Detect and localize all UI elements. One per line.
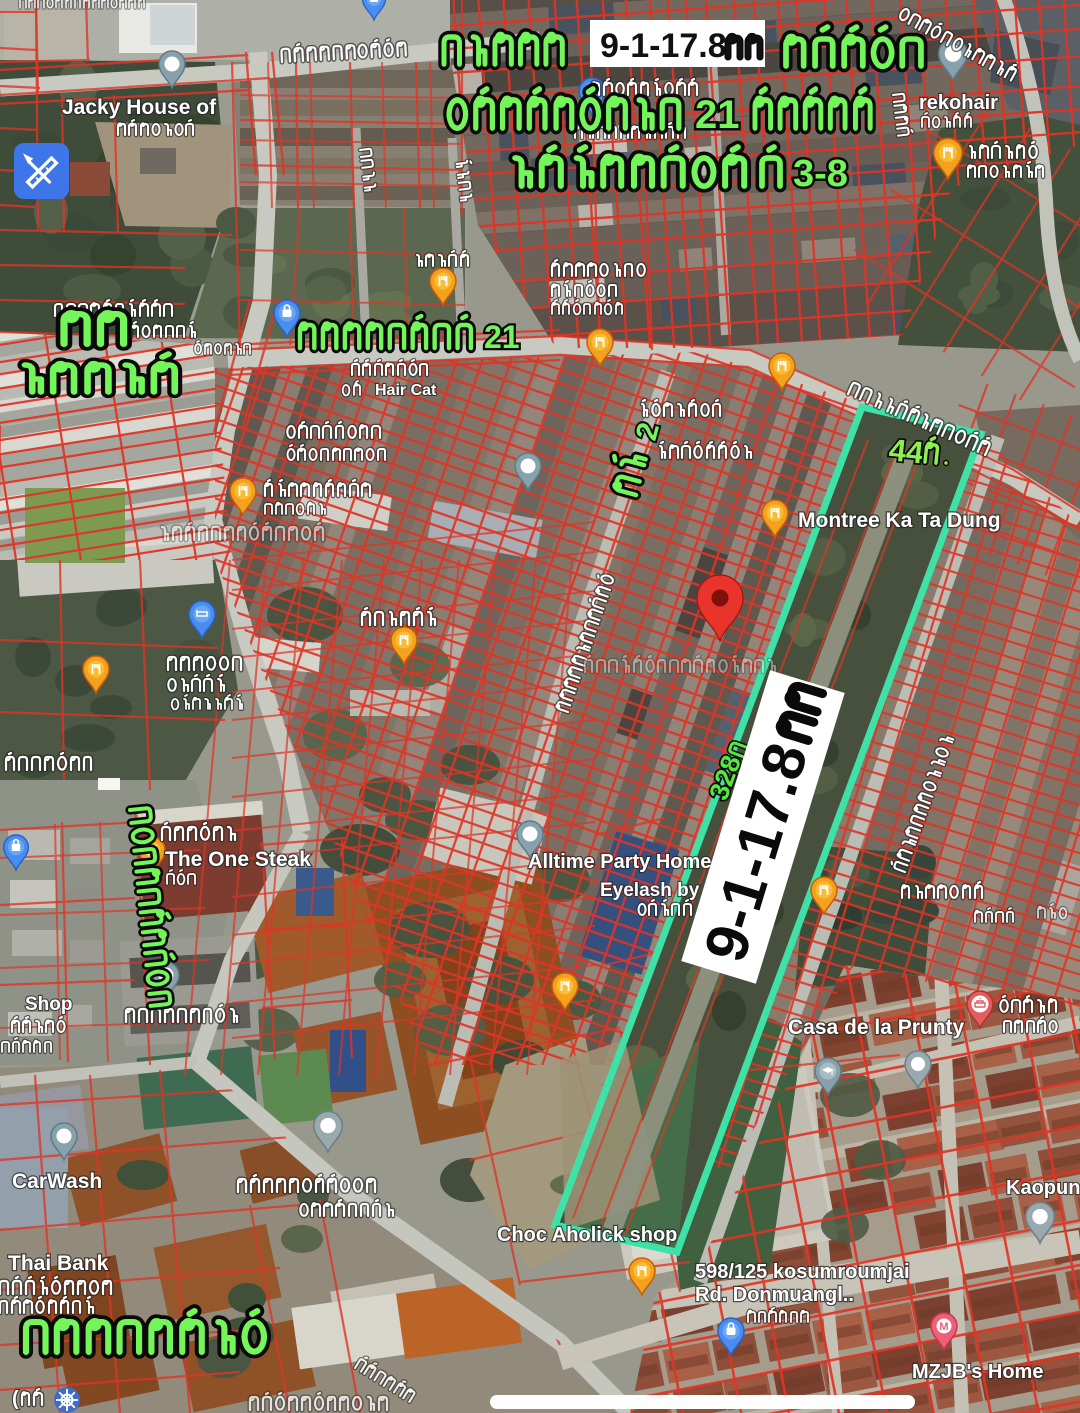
svg-text:Montree Ka Ta Dung: Montree Ka Ta Dung bbox=[798, 509, 1001, 532]
svg-text:Alltime Party Home: Alltime Party Home bbox=[528, 851, 711, 873]
svg-text:The One Steak: The One Steak bbox=[165, 848, 311, 871]
svg-text:21: 21 bbox=[484, 319, 520, 355]
svg-text:Hair Cat: Hair Cat bbox=[375, 382, 437, 399]
svg-text:CarWash: CarWash bbox=[12, 1170, 102, 1193]
svg-text:3-8: 3-8 bbox=[793, 153, 848, 195]
svg-text:44: 44 bbox=[887, 432, 926, 470]
svg-text:Jacky House of: Jacky House of bbox=[62, 96, 217, 119]
svg-text:9-1-17.8: 9-1-17.8 bbox=[600, 27, 727, 65]
svg-text:rekohair: rekohair bbox=[919, 92, 998, 114]
svg-text:Kaopun: Kaopun bbox=[1006, 1177, 1080, 1199]
svg-text:598/125 kosumroumjai: 598/125 kosumroumjai bbox=[695, 1261, 910, 1283]
svg-text:Shop: Shop bbox=[25, 994, 73, 1015]
svg-text:21: 21 bbox=[695, 93, 740, 137]
svg-text:Choc Aholick shop: Choc Aholick shop bbox=[497, 1224, 677, 1246]
svg-text:Thai Bank: Thai Bank bbox=[8, 1252, 109, 1275]
svg-text:Eyelash by: Eyelash by bbox=[600, 880, 700, 901]
svg-text:Casa de la Prunty: Casa de la Prunty bbox=[788, 1016, 965, 1039]
svg-text:MZJB's Home: MZJB's Home bbox=[912, 1361, 1043, 1383]
svg-text:Rd. Donmuangl..: Rd. Donmuangl.. bbox=[695, 1284, 854, 1306]
svg-text:(: ( bbox=[12, 1388, 19, 1410]
